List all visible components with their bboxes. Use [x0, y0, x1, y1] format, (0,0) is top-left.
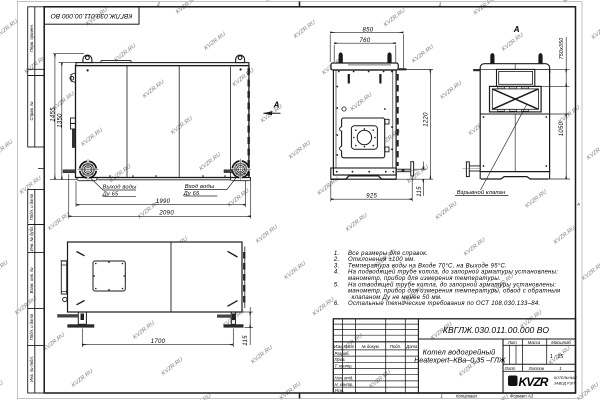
- svg-text:Справ. №: Справ. №: [29, 101, 34, 120]
- svg-text:Ду 65: Ду 65: [102, 191, 119, 197]
- svg-text:Выход воды: Выход воды: [102, 185, 137, 191]
- svg-text:1 : 15: 1 : 15: [550, 354, 564, 360]
- svg-text:1.: 1.: [334, 251, 340, 257]
- svg-text:Инв. № подл.: Инв. № подл.: [29, 356, 34, 382]
- svg-text:Разраб.: Разраб.: [335, 351, 350, 356]
- svg-text:Подп. и дата: Подп. и дата: [29, 193, 34, 220]
- svg-text:5.: 5.: [334, 282, 340, 288]
- svg-text:115: 115: [417, 186, 423, 197]
- svg-text:Нач. отд.: Нач. отд.: [335, 376, 354, 381]
- svg-text:750х350: 750х350: [559, 38, 565, 60]
- svg-text:Heatexpert–КВа–0,35 –ГЛЖ: Heatexpert–КВа–0,35 –ГЛЖ: [414, 356, 506, 365]
- svg-text:115: 115: [243, 335, 249, 346]
- svg-text:Температура воды на Входе 70°С: Температура воды на Входе 70°С, на Выход…: [348, 263, 507, 269]
- svg-text:Масса: Масса: [528, 340, 541, 345]
- svg-text:ЗАВОД РЭП: ЗАВОД РЭП: [554, 382, 575, 386]
- svg-text:1050: 1050: [559, 121, 565, 136]
- svg-text:Вход воды: Вход воды: [185, 184, 215, 190]
- svg-text:Утв.: Утв.: [335, 388, 345, 393]
- svg-text:манометр, прибор для измерения: манометр, прибор для измерения температу…: [348, 289, 560, 295]
- svg-text:1350: 1350: [57, 113, 63, 128]
- svg-text:КВГЛЖ.030.011.00.000 ВО: КВГЛЖ.030.011.00.000 ВО: [443, 325, 550, 335]
- svg-text:Отклонения ±100 мм.: Отклонения ±100 мм.: [348, 257, 416, 263]
- svg-text:Листов: Листов: [528, 366, 545, 371]
- svg-text:Подп. и дата: Подп. и дата: [29, 313, 34, 340]
- svg-text:Масштаб: Масштаб: [551, 340, 571, 345]
- svg-text:1455: 1455: [50, 107, 56, 122]
- svg-text:Перв. примен.: Перв. примен.: [29, 24, 34, 52]
- svg-text:Лит.: Лит.: [507, 340, 518, 345]
- svg-text:клапаном Ду не менее 50 мм.: клапаном Ду не менее 50 мм.: [352, 295, 443, 301]
- svg-text:1220: 1220: [423, 112, 429, 127]
- svg-text:Взрывной клапан: Взрывной клапан: [457, 189, 506, 196]
- svg-text:1700: 1700: [151, 339, 166, 345]
- svg-text:Дата: Дата: [405, 344, 418, 349]
- svg-text:Пров.: Пров.: [335, 357, 346, 362]
- svg-text:Остальные технические требован: Остальные технические требования по ОСТ …: [348, 301, 540, 307]
- svg-text:6.: 6.: [334, 301, 340, 307]
- svg-text:4.: 4.: [334, 270, 340, 276]
- svg-text:2090: 2090: [158, 211, 174, 217]
- svg-text:Копировал: Копировал: [456, 393, 477, 398]
- svg-text:А: А: [576, 202, 580, 207]
- svg-text:манометр, прибор для измерения: манометр, прибор для измерения температу…: [348, 276, 501, 282]
- svg-text:КВГЛЖ.030.011.00.000 ВО: КВГЛЖ.030.011.00.000 ВО: [50, 12, 133, 19]
- svg-text:925: 925: [366, 193, 377, 199]
- svg-text:3.: 3.: [334, 263, 340, 269]
- svg-text:Т. контр.: Т. контр.: [335, 363, 353, 368]
- svg-text:Изм: Изм: [334, 344, 342, 349]
- svg-text:1990: 1990: [156, 199, 171, 205]
- svg-text:Н. контр.: Н. контр.: [335, 382, 354, 387]
- svg-text:Лист: Лист: [343, 344, 355, 349]
- svg-text:1: 1: [441, 393, 443, 398]
- svg-text:850: 850: [363, 27, 374, 33]
- svg-text:Ду 65: Ду 65: [183, 191, 200, 197]
- svg-text:2: 2: [156, 2, 160, 7]
- svg-text:Все размеры для справок.: Все размеры для справок.: [348, 251, 428, 257]
- svg-text:КОТЕЛЬНЫЙ: КОТЕЛЬНЫЙ: [554, 376, 577, 380]
- svg-text:760: 760: [360, 38, 371, 44]
- svg-text:1: 1: [559, 366, 561, 371]
- svg-text:Формат А3: Формат А3: [510, 393, 534, 398]
- svg-text:Лист: Лист: [504, 366, 516, 371]
- svg-text:На отводящей трубе котла, до з: На отводящей трубе котла, до запорной ар…: [348, 281, 556, 288]
- svg-text:Инв. № дубл.: Инв. № дубл.: [29, 226, 34, 252]
- svg-text:А: А: [273, 101, 280, 110]
- svg-text:А: А: [513, 25, 520, 34]
- svg-text:Взам. инв. №: Взам. инв. №: [29, 267, 34, 293]
- svg-text:№ докум.: № докум.: [361, 344, 379, 349]
- svg-text:Подп.: Подп.: [390, 344, 401, 349]
- svg-text:KVZR: KVZR: [519, 375, 549, 389]
- svg-text:2.: 2.: [333, 257, 340, 263]
- svg-text:На подводящей трубе котла, до: На подводящей трубе котла, до запорной а…: [348, 269, 558, 276]
